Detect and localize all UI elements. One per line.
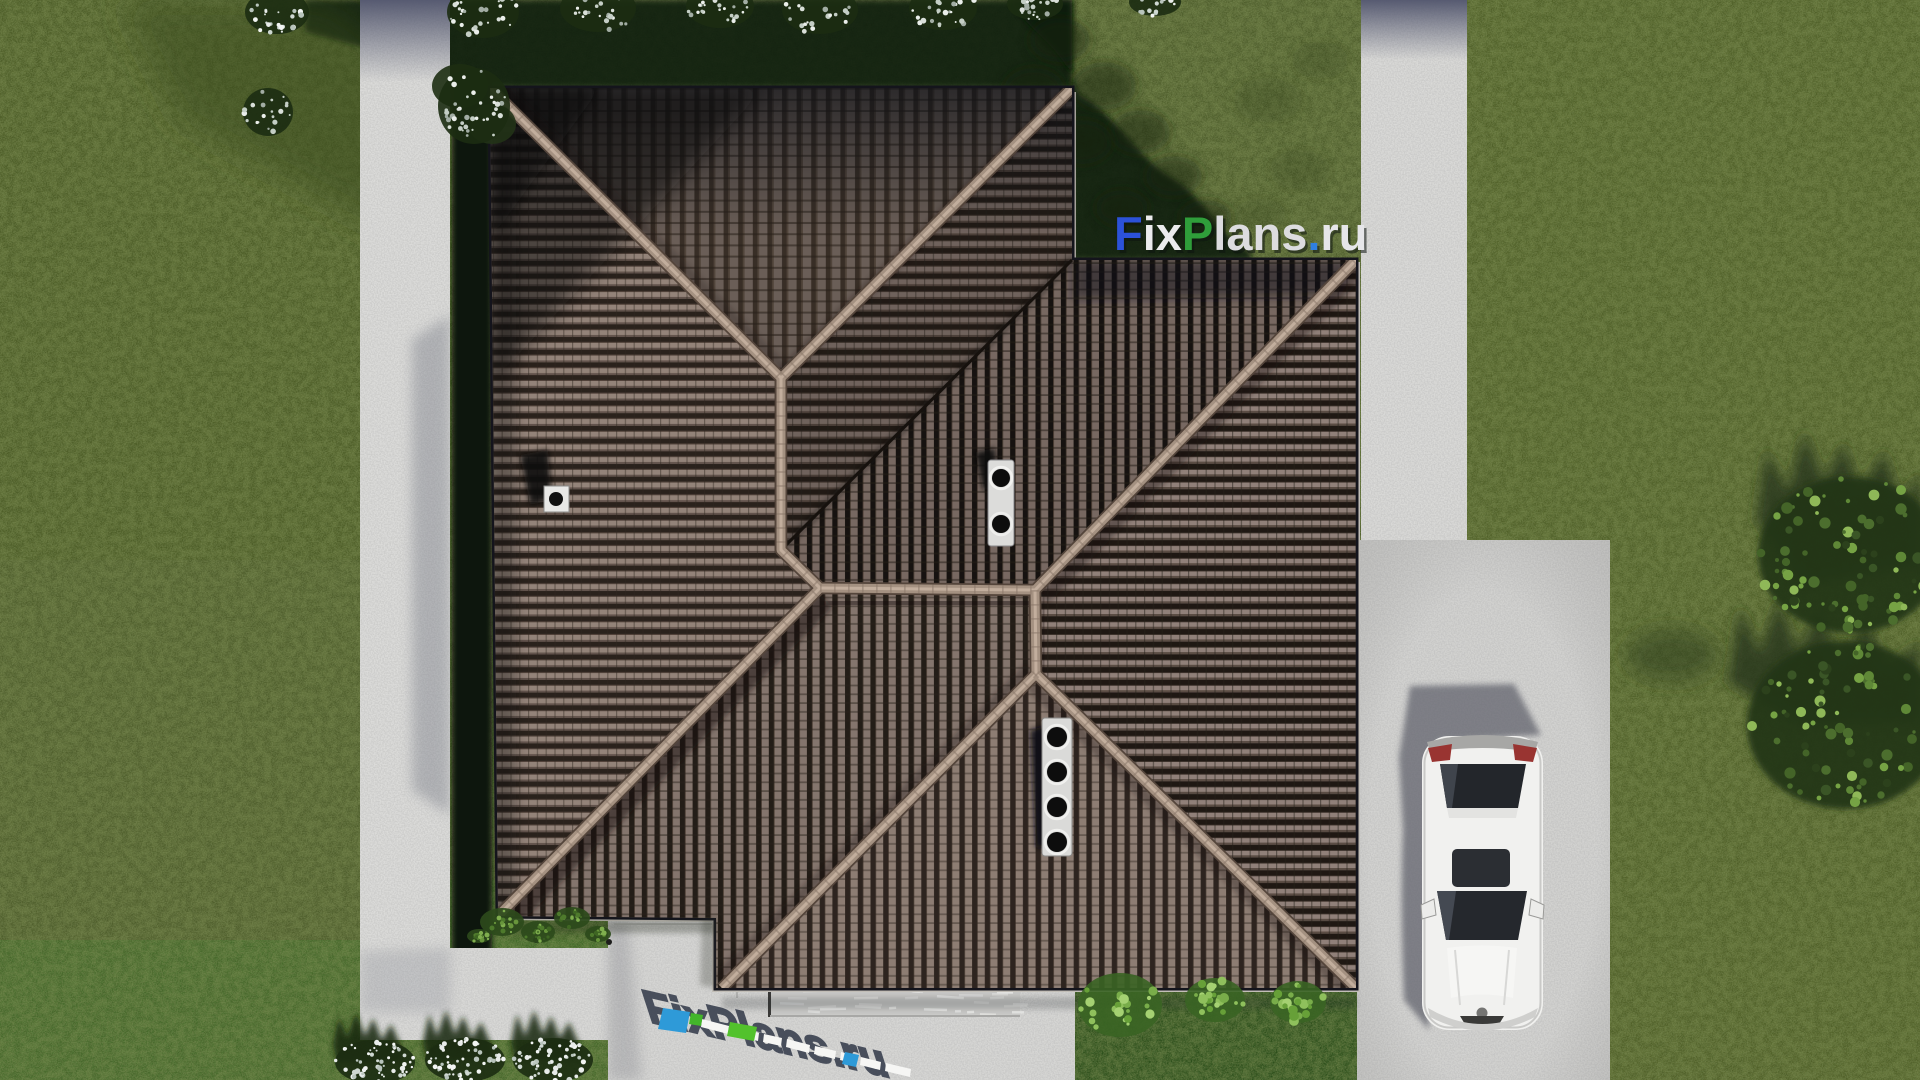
svg-text:FixPlans.ru: FixPlans.ru: [1114, 207, 1367, 260]
